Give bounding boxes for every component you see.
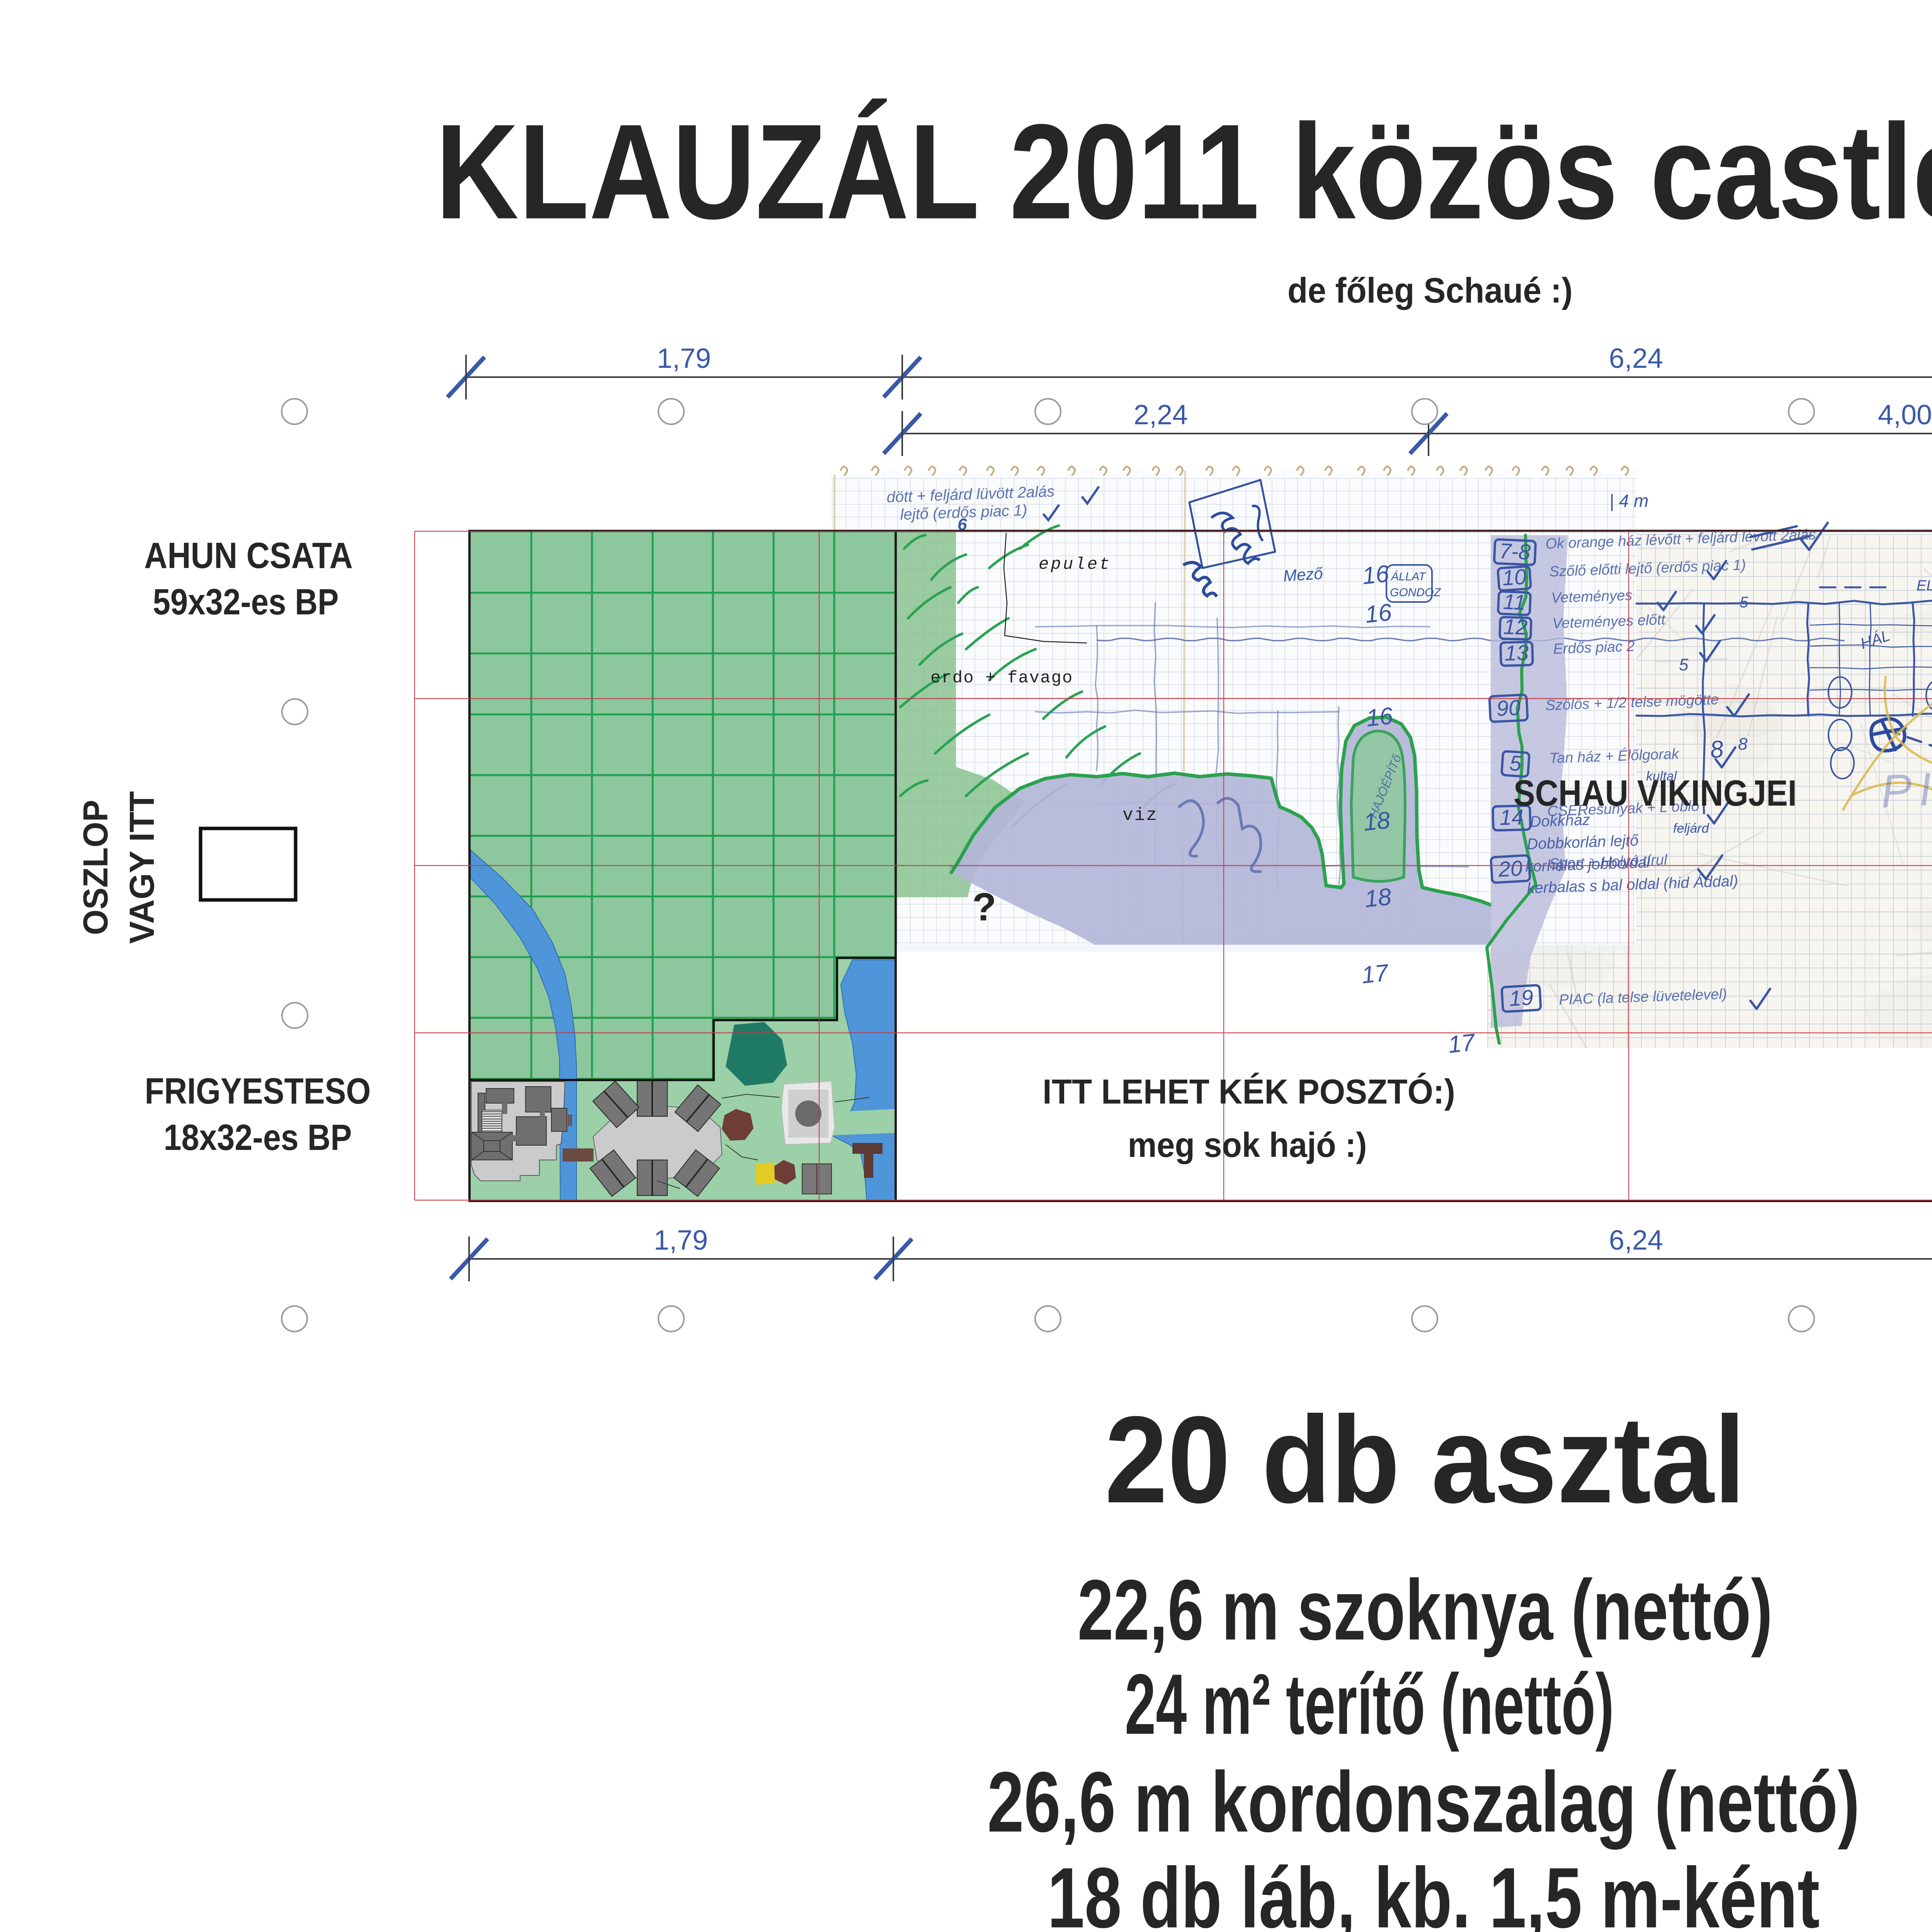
svg-text:18x32-es BP: 18x32-es BP (164, 1117, 352, 1158)
svg-text:de főleg Schaué :): de főleg Schaué :) (1287, 271, 1573, 310)
svg-text:ÁLLAT: ÁLLAT (1390, 570, 1427, 583)
svg-text:4,00: 4,00 (1878, 400, 1932, 430)
svg-text:5: 5 (1509, 750, 1523, 776)
svg-text:1,79: 1,79 (657, 343, 711, 374)
svg-text:Dokkház: Dokkház (1530, 811, 1590, 830)
svg-text:KLAUZÁL 2011 közös castle disp: KLAUZÁL 2011 közös castle display, (435, 96, 1932, 248)
svg-text:erdo + favago: erdo + favago (930, 668, 1073, 688)
svg-text:VAGY ITT: VAGY ITT (123, 791, 162, 944)
svg-text:7-8: 7-8 (1499, 539, 1531, 564)
svg-text:SCHAU VIKINGJEI: SCHAU VIKINGJEI (1514, 773, 1797, 814)
svg-text:AHUN CSATA: AHUN CSATA (144, 535, 353, 576)
svg-text:16: 16 (1361, 560, 1390, 590)
svg-text:6,24: 6,24 (1609, 1225, 1663, 1256)
svg-text:18 db láb, kb. 1,5 m-ként: 18 db láb, kb. 1,5 m-ként (1048, 1850, 1820, 1932)
svg-text:26,6 m kordonszalag (nettó): 26,6 m kordonszalag (nettó) (987, 1754, 1860, 1850)
svg-text:ITT LEHET KÉK POSZTÓ:): ITT LEHET KÉK POSZTÓ:) (1043, 1072, 1455, 1111)
svg-text:?: ? (972, 885, 996, 929)
svg-text:20: 20 (1497, 856, 1523, 882)
svg-text:22,6 m szoknya (nettó): 22,6 m szoknya (nettó) (1078, 1562, 1773, 1658)
svg-text:18: 18 (1363, 883, 1393, 913)
svg-text:17: 17 (1360, 959, 1390, 989)
svg-text:5: 5 (1740, 594, 1748, 611)
svg-text:5: 5 (1679, 655, 1689, 674)
svg-text:16: 16 (1365, 702, 1394, 732)
svg-text:PIAC: PIAC (1879, 759, 1932, 818)
svg-text:GONDOZ: GONDOZ (1390, 586, 1441, 599)
svg-text:20 db asztal: 20 db asztal (1105, 1390, 1745, 1529)
svg-text:| 4 m: | 4 m (1609, 491, 1648, 511)
svg-text:FRIGYESTESO: FRIGYESTESO (145, 1071, 371, 1112)
svg-text:10: 10 (1502, 564, 1527, 590)
svg-text:Veteményes: Veteményes (1551, 587, 1633, 606)
svg-text:12: 12 (1503, 614, 1528, 639)
svg-text:6,24: 6,24 (1609, 343, 1663, 374)
svg-text:1,79: 1,79 (654, 1225, 708, 1256)
svg-text:16: 16 (1364, 599, 1393, 628)
svg-text:24 m² terítő (nettó): 24 m² terítő (nettó) (1125, 1656, 1614, 1752)
svg-text:13: 13 (1504, 640, 1529, 665)
svg-text:19: 19 (1509, 985, 1534, 1010)
svg-text:ELÍTÉP FAL: ELÍTÉP FAL (1917, 577, 1932, 594)
svg-text:Mező: Mező (1282, 564, 1323, 585)
svg-text:Erdős piac 2: Erdős piac 2 (1553, 638, 1635, 657)
svg-text:epulet: epulet (1039, 555, 1111, 574)
svg-text:59x32-es BP: 59x32-es BP (153, 582, 339, 622)
svg-text:feljárd: feljárd (1673, 821, 1709, 836)
svg-text:11: 11 (1503, 589, 1526, 614)
svg-text:17: 17 (1447, 1029, 1477, 1058)
svg-text:2,24: 2,24 (1134, 400, 1188, 430)
svg-text:18: 18 (1362, 807, 1391, 836)
svg-text:OSZLOP: OSZLOP (77, 800, 115, 935)
svg-text:meg sok hajó :): meg sok hajó :) (1128, 1126, 1367, 1165)
svg-text:viz: viz (1122, 805, 1158, 825)
svg-text:8: 8 (1738, 735, 1748, 753)
